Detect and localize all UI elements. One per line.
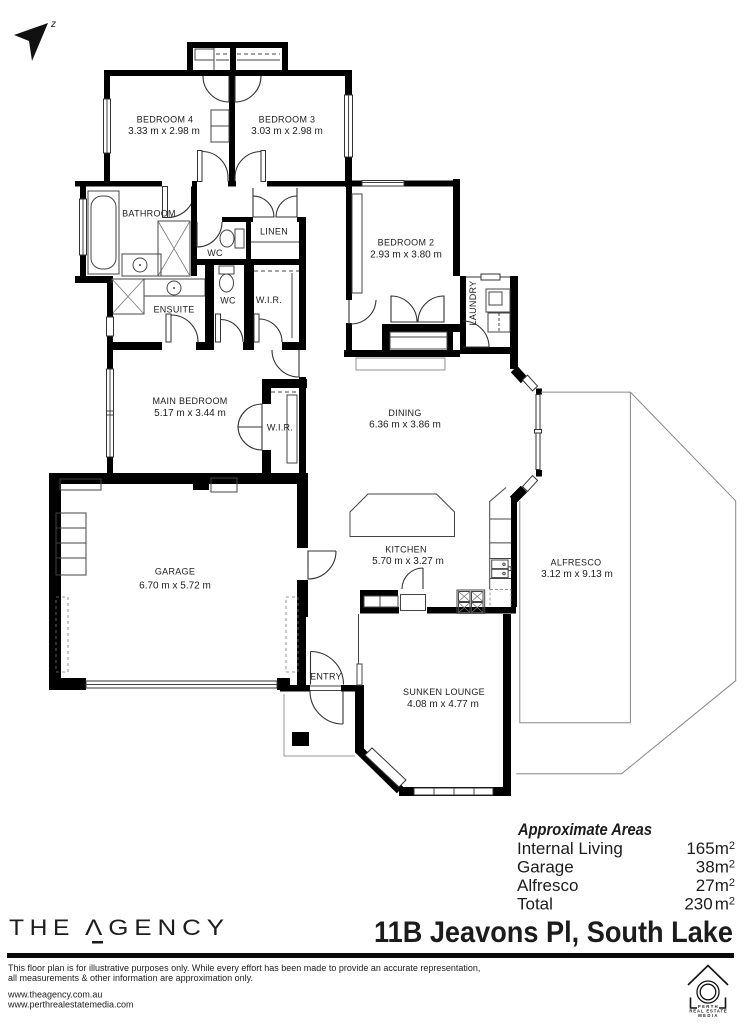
svg-text:5.70 m x 3.27 m: 5.70 m x 3.27 m [372,556,444,567]
svg-text:11B Jeavons Pl, South Lake: 11B Jeavons Pl, South Lake [374,916,733,949]
svg-text:165m2: 165m2 [686,839,735,858]
svg-text:2.93 m x 3.80 m: 2.93 m x 3.80 m [370,250,442,261]
svg-text:MAIN BEDROOM: MAIN BEDROOM [152,396,227,406]
svg-text:www.perthrealestatemedia.com: www.perthrealestatemedia.com [7,1000,134,1010]
svg-text:Alfresco: Alfresco [517,876,578,895]
svg-text:6.70 m x 5.72 m: 6.70 m x 5.72 m [139,581,211,592]
svg-text:KITCHEN: KITCHEN [385,545,427,555]
svg-text:ENSUITE: ENSUITE [153,305,194,315]
svg-text:Garage: Garage [517,858,574,877]
svg-text:BATHROOM: BATHROOM [122,209,176,219]
svg-text:3.33 m x 2.98 m: 3.33 m x 2.98 m [128,126,200,137]
svg-text:W.I.R.: W.I.R. [267,423,293,433]
svg-text:THE: THE [9,915,75,940]
svg-text:LINEN: LINEN [260,227,288,237]
svg-text:3.03 m x 2.98 m: 3.03 m x 2.98 m [251,126,323,137]
svg-text:This floor plan is for illustr: This floor plan is for illustrative purp… [8,963,480,973]
svg-text:BEDROOM 4: BEDROOM 4 [137,115,194,125]
svg-text:4.08 m x 4.77 m: 4.08 m x 4.77 m [407,699,479,710]
svg-text:ΛGENCY: ΛGENCY [85,915,230,940]
svg-text:www.theagency.com.au: www.theagency.com.au [7,990,102,1000]
svg-text:5.17 m x 3.44 m: 5.17 m x 3.44 m [154,408,226,419]
svg-text:MEDIA: MEDIA [698,1013,719,1018]
svg-text:all measurements & other infor: all measurements & other information are… [8,973,253,983]
svg-text:Approximate Areas: Approximate Areas [517,820,652,839]
svg-text:z: z [50,19,56,30]
svg-text:W.I.R.: W.I.R. [256,295,282,305]
svg-text:ALFRESCO: ALFRESCO [551,558,602,568]
svg-text:WC: WC [220,296,236,306]
svg-text:LAUNDRY: LAUNDRY [468,281,478,326]
svg-text:ENTRY: ENTRY [310,672,342,682]
svg-text:Total: Total [517,895,553,914]
svg-text:230m2: 230m2 [684,895,735,914]
svg-text:BEDROOM 2: BEDROOM 2 [378,238,435,248]
svg-text:Internal Living: Internal Living [517,839,623,858]
svg-text:GARAGE: GARAGE [155,567,195,577]
svg-text:WC: WC [207,248,223,258]
svg-text:SUNKEN LOUNGE: SUNKEN LOUNGE [403,687,485,697]
svg-text:BEDROOM 3: BEDROOM 3 [259,115,316,125]
svg-text:DINING: DINING [388,408,421,418]
svg-text:3.12 m x 9.13 m: 3.12 m x 9.13 m [541,569,613,580]
svg-text:6.36 m x 3.86 m: 6.36 m x 3.86 m [369,420,441,431]
